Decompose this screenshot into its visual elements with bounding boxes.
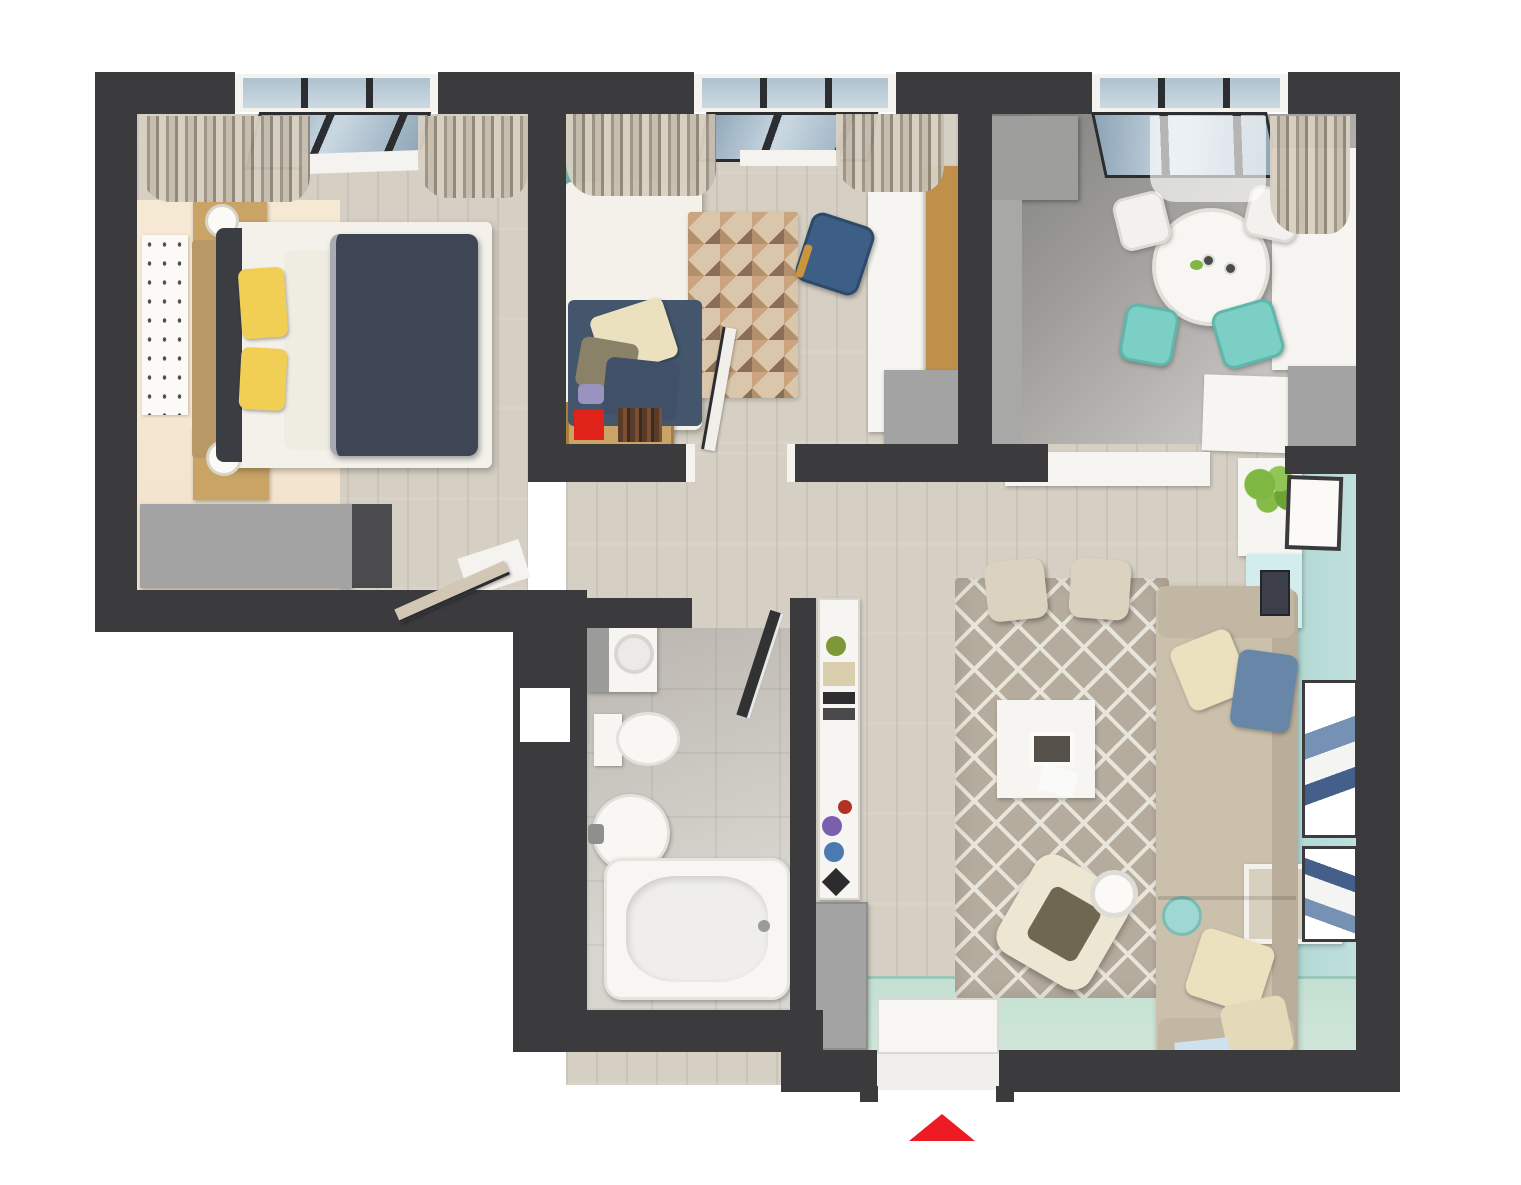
kitchen-appliance (1288, 366, 1356, 448)
partition-hall-kids (528, 444, 692, 482)
storage-box-red (574, 410, 604, 440)
pillow-lilac (578, 384, 604, 404)
curtains (418, 116, 528, 198)
coffee-cup (1224, 262, 1237, 275)
outer-wall-right (1356, 72, 1400, 1092)
window-glass (1100, 78, 1280, 108)
wall-art (1302, 680, 1358, 838)
bathroom-wall-left (513, 590, 587, 1052)
sheer-curtain (1150, 116, 1266, 202)
pillow-yellow (238, 266, 289, 339)
floor-art-print (142, 235, 188, 415)
entry-door-panel (877, 998, 999, 1054)
bed-headboard-cushion (216, 228, 242, 462)
floor-plan (0, 0, 1521, 1185)
outer-wall-left (95, 72, 137, 632)
kitchen-cabinet-tall (992, 200, 1022, 446)
entry-threshold (877, 1054, 999, 1090)
shelf-item-frame (823, 708, 855, 720)
shelf-item-towel-blue (824, 842, 844, 862)
partition-kids-kitchen (958, 114, 992, 455)
curtains (1270, 116, 1350, 234)
outer-wall-top (438, 72, 694, 114)
curtains (140, 116, 310, 202)
washer-drum (614, 634, 654, 674)
wardrobe-wood (926, 166, 958, 374)
bathroom-wall-top (587, 598, 692, 628)
wardrobe (140, 504, 352, 588)
bathroom-wall-right (790, 598, 816, 1052)
sink-faucet (588, 824, 604, 844)
window-glass (702, 78, 888, 108)
wall-niche (520, 688, 570, 742)
bed-duvet-navy (330, 234, 478, 456)
kids-rug (688, 212, 798, 398)
coffee-cup (1202, 254, 1215, 267)
shelf-item-frame (823, 692, 855, 704)
entrance-jamb-tab (860, 1086, 878, 1102)
entrance-arrow-icon (909, 1114, 975, 1141)
dining-chair-teal (1117, 302, 1180, 368)
table-plant-sprig (1190, 260, 1203, 270)
washer-side-panel (587, 622, 609, 692)
pouf (1068, 557, 1132, 621)
sofa-seat-divider (1158, 896, 1296, 900)
curtains (836, 114, 944, 192)
curtains (566, 114, 716, 196)
shelf-item-box (823, 662, 855, 686)
kitchen-cabinet-corner (992, 116, 1078, 200)
entrance-jamb-tab (996, 1086, 1014, 1102)
outer-wall-bottom-bathroom (513, 1010, 823, 1052)
pillow-yellow (238, 347, 287, 411)
wardrobe-end-panel (352, 504, 392, 588)
window-sill (740, 150, 840, 166)
pouf (983, 557, 1049, 623)
tray-side-table (1090, 870, 1138, 918)
door-jamb (686, 444, 695, 482)
glass-side-table (1162, 896, 1202, 936)
bathtub-basin (626, 876, 768, 982)
shelf-item-towel-purple (822, 816, 842, 836)
partition-stub-living (1285, 446, 1356, 474)
bed-headboard (192, 240, 218, 458)
bed-sheet (284, 250, 336, 450)
tub-faucet (758, 920, 770, 932)
shelf-item-jar (826, 636, 846, 656)
photo-book (1030, 732, 1074, 766)
picture-frame (1285, 475, 1344, 551)
toilet-bowl (616, 712, 680, 766)
wall-art (1302, 846, 1358, 942)
door-jamb (787, 444, 795, 482)
shelf-item-ball-red (838, 800, 852, 814)
laptop (1260, 570, 1290, 616)
window-glass (243, 78, 430, 108)
pillow-blue (1229, 648, 1299, 734)
storage-cabinet (884, 370, 958, 450)
books-row (618, 408, 662, 442)
partition-bedrooms (528, 114, 566, 460)
partition-hall-kitchen (795, 444, 1048, 482)
outer-wall-bottom (997, 1050, 1400, 1092)
outer-wall-top (896, 72, 1092, 114)
